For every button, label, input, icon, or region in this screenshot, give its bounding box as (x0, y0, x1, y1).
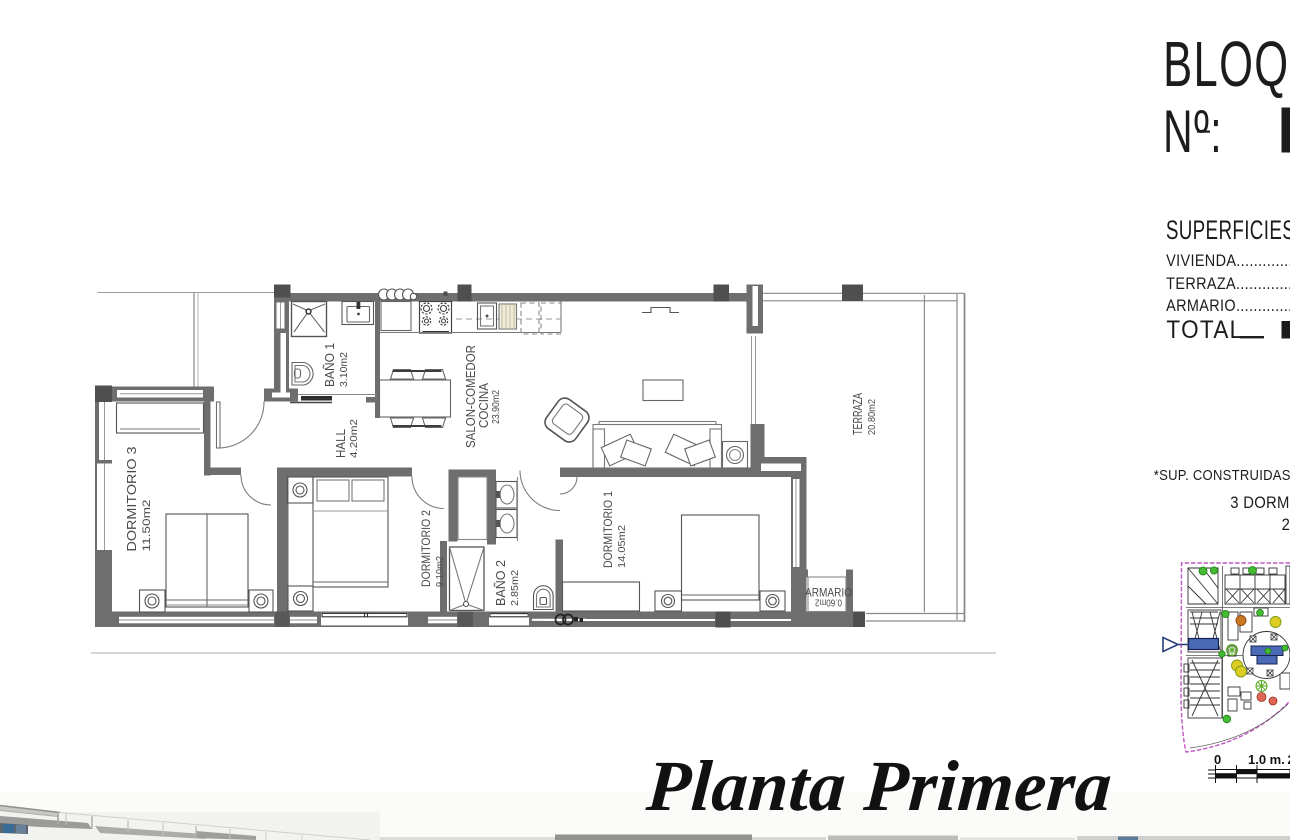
svg-text:4.20m2: 4.20m2 (348, 419, 360, 458)
svg-text:3.10m2: 3.10m2 (338, 352, 350, 387)
svg-text:BAÑO 1: BAÑO 1 (323, 343, 337, 387)
svg-text:HALL: HALL (334, 429, 348, 458)
svg-text:*SUP. CONSTRUIDAS CON P: *SUP. CONSTRUIDAS CON P (1154, 467, 1290, 483)
svg-text:VIVIENDA......................: VIVIENDA................................… (1166, 252, 1290, 270)
svg-text:ARMARIO.......................: ARMARIO.................................… (1166, 297, 1290, 315)
svg-text:BLOQUE: BLOQUE (1163, 28, 1290, 101)
svg-text:2 B: 2 B (1282, 516, 1290, 534)
svg-text:Nº:: Nº: (1163, 98, 1223, 165)
svg-text:SUPERFICIES UTILES: SUPERFICIES UTILES (1166, 215, 1290, 245)
svg-text:2.85m2: 2.85m2 (509, 570, 521, 606)
svg-text:DORMITORIO 2: DORMITORIO 2 (419, 510, 433, 587)
svg-text:TERRAZA: TERRAZA (851, 393, 865, 435)
svg-text:9.10m2: 9.10m2 (434, 556, 446, 587)
svg-text:20.80m2: 20.80m2 (866, 399, 878, 435)
svg-text:COCINA: COCINA (477, 382, 491, 428)
svg-text:DORMITORIO 1: DORMITORIO 1 (601, 491, 615, 568)
svg-text:BAÑO 2: BAÑO 2 (494, 560, 508, 606)
svg-text:23.90m2: 23.90m2 (490, 390, 502, 424)
svg-text:DORMITORIO 3: DORMITORIO 3 (124, 447, 139, 552)
svg-text:0: 0 (1214, 752, 1221, 767)
svg-text:1.0 m.: 1.0 m. (1248, 752, 1285, 767)
svg-text:3 DORMITORIOS: 3 DORMITORIOS (1230, 494, 1290, 512)
svg-text:Planta Primera: Planta Primera (643, 746, 1115, 826)
svg-text:TERRAZA.......................: TERRAZA.................................… (1166, 275, 1290, 293)
svg-text:TOTAL: TOTAL (1166, 316, 1243, 344)
svg-text:SALON-COMEDOR: SALON-COMEDOR (464, 345, 478, 448)
svg-text:0.60m2: 0.60m2 (815, 597, 842, 608)
svg-text:11.50m2: 11.50m2 (141, 500, 153, 552)
svg-text:14.05m2: 14.05m2 (616, 525, 628, 568)
